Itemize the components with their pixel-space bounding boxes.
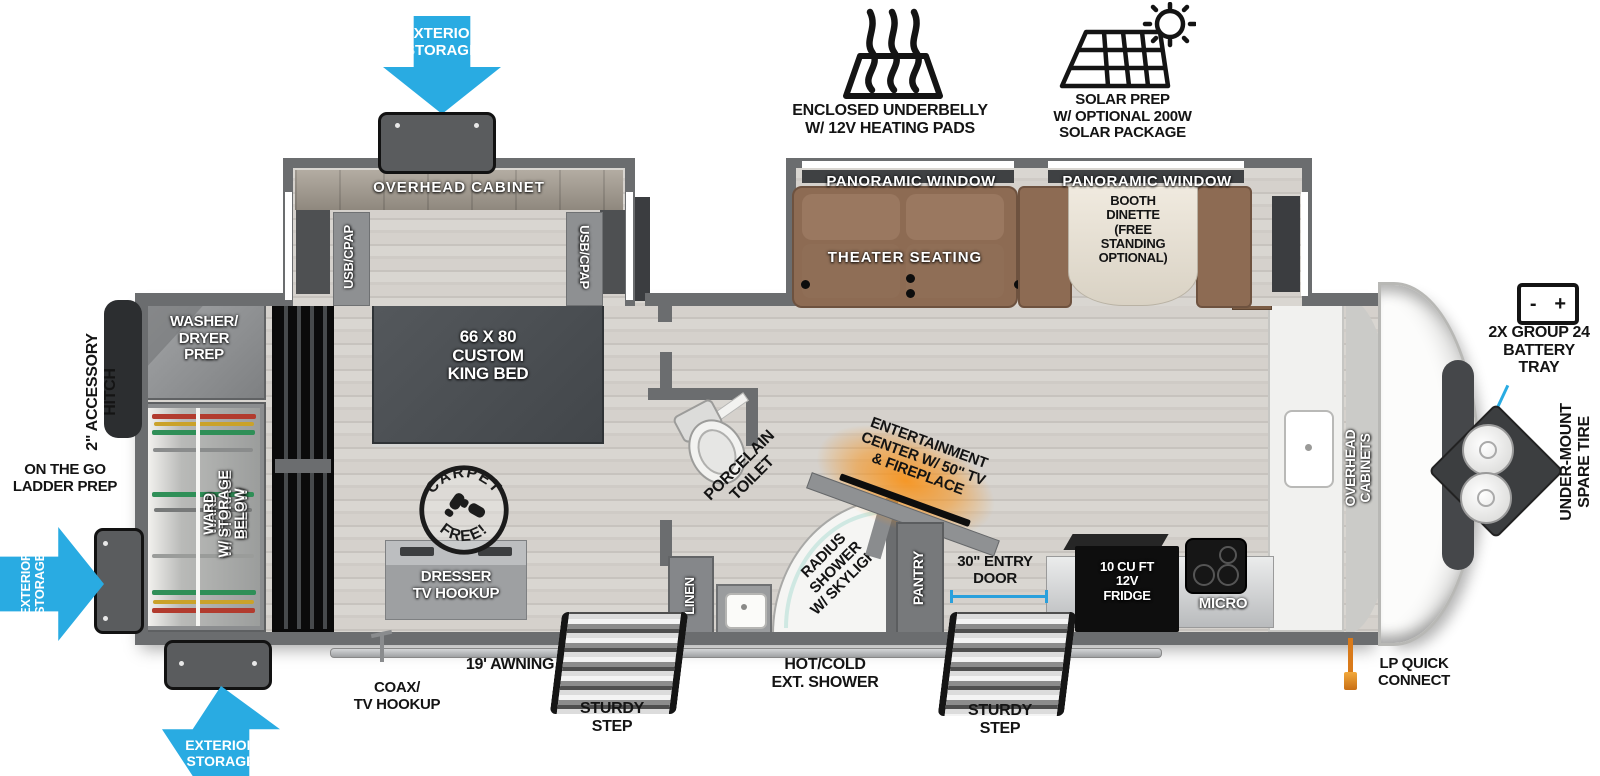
overhead-cabinet: OVERHEAD CABINET [295,170,623,210]
top-storage-compartment [378,112,496,174]
overhead-cabinet-label: OVERHEAD CABINET [295,180,623,197]
dinette-bench-right [1196,186,1252,308]
solar-prep-icon [1046,2,1196,94]
ladder-prep-label: ON THE GO LADDER PREP [0,462,132,495]
cupholder [906,289,915,298]
top-wall-rear [135,293,285,306]
dresser-label: DRESSER TV HOOKUP [386,569,526,602]
dinette-table: BOOTH DINETTE (FREE STANDING OPTIONAL) [1068,186,1198,306]
carpet-free-stamp: CARPET FREE! [416,462,512,558]
washer-dryer-prep-cabinet: WASHER/ DRYER PREP [142,296,266,400]
theater-seating-label: THEATER SEATING [800,250,1010,267]
top-wall-front [1310,293,1382,306]
bedroom-window-left [285,192,292,300]
fridge: 10 CU FT 12V FRIDGE [1075,546,1179,632]
entry-door-label: 30" ENTRY DOOR [920,554,1070,587]
cupholder [801,280,810,289]
sturdy-step-mid-label: STURDY STEP [552,700,672,735]
louvered-wardrobe [272,300,334,632]
panoramic-window-strip-right [1048,161,1244,168]
overhead-cabinets-label: OVERHEAD CABINETS [1343,414,1377,522]
propane-tank [1462,424,1514,476]
panoramic-window-strip-left [802,161,1014,168]
kitchen-sink [1284,410,1334,488]
solar-label: SOLAR PREP W/ OPTIONAL 200W SOLAR PACKAG… [1030,92,1215,142]
theater-seating [792,186,1018,308]
exterior-storage-arrow-left-label: EXTERIOR STORAGE [19,532,53,636]
exterior-storage-arrow-top: EXTERIOR STORAGE [383,16,501,114]
cupholder [906,274,915,283]
top-wall-mid [645,293,788,306]
washer-dryer-label: WASHER/ DRYER PREP [144,314,264,364]
coax-hookup-icon [380,634,384,662]
underbelly-label: ENCLOSED UNDERBELLY W/ 12V HEATING PADS [782,102,998,137]
exterior-storage-arrow-bottom-label: EXTERIOR STORAGE [162,737,280,769]
sturdy-step-mid [550,612,689,714]
micro-label: MICRO [1180,596,1266,613]
ext-shower-label: HOT/COLD EXT. SHOWER [740,656,910,691]
rv-floorplan-diagram: WASHER/ DRYER PREP WARD W/ STORAGE BELOW… [0,0,1600,776]
slideout-end-window-strip [1301,192,1308,296]
entry-door-measure-line [952,595,1046,598]
bottom-wall-front [1046,632,1380,645]
exterior-storage-arrow-top-label: EXTERIOR STORAGE [383,25,501,60]
fridge-label: 10 CU FT 12V FRIDGE [1075,560,1179,603]
sturdy-step-entry-label: STURDY STEP [940,702,1060,737]
battery-minus: - [1530,293,1537,316]
bottom-storage-compartment [164,640,272,690]
underbelly-heating-icon [822,4,962,104]
bottom-wall-mid [666,632,948,645]
king-bed-label: 66 X 80 CUSTOM KING BED [374,328,602,384]
battery-icon: - + [1517,283,1579,325]
hitch-label: 2" ACCESSORY HITCH [84,322,120,462]
panoramic-window-right-label: PANORAMIC WINDOW [1042,174,1252,191]
bedroom-window-recess-left [296,210,330,294]
bedroom-window-recess-right [600,210,625,294]
usb-cpap-right-label: USB/CPAP [575,211,591,303]
exterior-storage-arrow-bottom: EXTERIOR STORAGE [162,686,280,776]
battery-tray-label: 2X GROUP 24 BATTERY TRAY [1478,324,1600,377]
battery-plus: + [1554,293,1566,316]
bedroom-window-right [626,192,633,300]
bath-vanity [716,584,772,634]
ward-label: WARD W/ STORAGE BELOW [201,409,253,619]
spare-tire-label: UNDER-MOUNT SPARE TIRE [1558,387,1594,537]
slideout-end-window [1272,196,1300,292]
cooktop [1185,538,1247,594]
lp-quick-connect-fitting [1344,672,1357,690]
coax-label: COAX/ TV HOOKUP [342,680,452,713]
propane-tank [1460,472,1512,524]
dinette-bench-left [1018,186,1072,308]
lp-quick-connect-pipe [1348,638,1353,676]
sturdy-step-entry [938,612,1077,716]
panoramic-window-left-label: PANORAMIC WINDOW [806,174,1016,191]
usb-cpap-left-label: USB/CPAP [342,211,358,303]
booth-dinette-label: BOOTH DINETTE (FREE STANDING OPTIONAL) [1069,194,1197,265]
lp-label: LP QUICK CONNECT [1360,656,1468,689]
